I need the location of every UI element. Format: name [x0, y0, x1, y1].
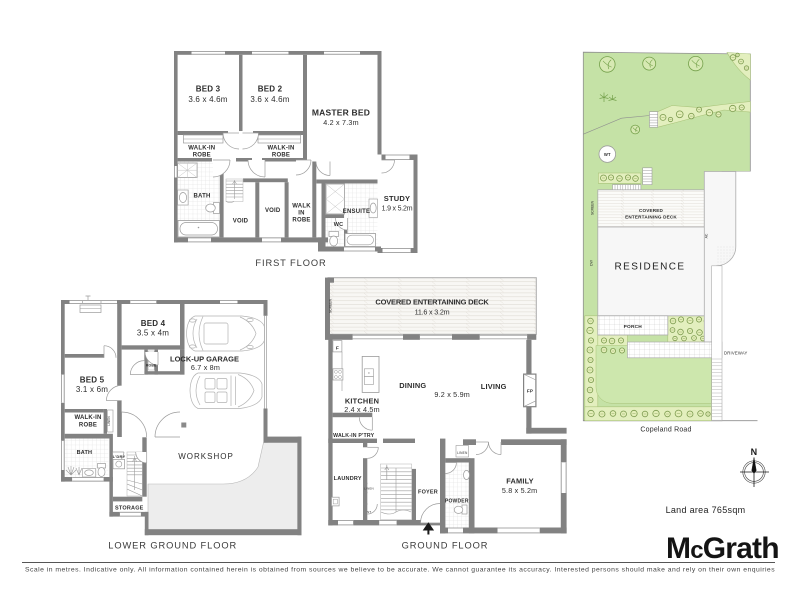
svg-text:DW: DW: [590, 259, 594, 265]
svg-text:1.9 x 5.2m: 1.9 x 5.2m: [382, 206, 413, 213]
svg-text:BED 3: BED 3: [196, 85, 221, 94]
svg-text:WALK-IN: WALK-IN: [267, 146, 294, 152]
svg-text:PORCH: PORCH: [624, 324, 643, 330]
svg-text:McGrath: McGrath: [666, 532, 779, 565]
svg-text:POWDER: POWDER: [445, 498, 469, 504]
svg-text:9.2 x 5.9m: 9.2 x 5.9m: [434, 390, 470, 399]
svg-text:BED 4: BED 4: [141, 319, 166, 328]
svg-text:COVERED ENTERTAINING DECK: COVERED ENTERTAINING DECK: [375, 298, 489, 307]
svg-text:WORKSHOP: WORKSHOP: [178, 452, 234, 461]
svg-text:ENTERTAINING DECK: ENTERTAINING DECK: [625, 215, 677, 220]
svg-text:2.4 x 4.5m: 2.4 x 4.5m: [344, 405, 380, 414]
svg-text:4.2 x 7.3m: 4.2 x 7.3m: [323, 118, 359, 127]
svg-text:SCREEN: SCREEN: [329, 298, 333, 313]
svg-text:SCREEN: SCREEN: [590, 200, 594, 215]
svg-text:N: N: [751, 447, 758, 457]
svg-text:Copeland Road: Copeland Road: [640, 427, 691, 434]
svg-text:BED 5: BED 5: [80, 376, 105, 385]
svg-text:WALK-IN: WALK-IN: [74, 415, 101, 421]
svg-text:FOYER: FOYER: [418, 490, 438, 496]
svg-text:GROUND FLOOR: GROUND FLOOR: [402, 541, 489, 551]
svg-text:LOWER GROUND FLOOR: LOWER GROUND FLOOR: [108, 541, 237, 551]
svg-text:LINEN: LINEN: [107, 416, 111, 426]
svg-text:COVERED: COVERED: [639, 208, 664, 213]
svg-text:WT: WT: [604, 152, 611, 157]
svg-text:ST: ST: [367, 510, 371, 514]
svg-text:BATH: BATH: [193, 194, 210, 200]
svg-text:ROBE: ROBE: [292, 218, 310, 224]
svg-text:STUDY: STUDY: [384, 194, 410, 203]
svg-text:BED 2: BED 2: [258, 85, 283, 94]
svg-text:DINING: DINING: [399, 381, 426, 390]
svg-text:LINEN: LINEN: [364, 487, 374, 491]
svg-text:3.6 x 4.6m: 3.6 x 4.6m: [250, 95, 289, 104]
svg-text:11.6 x 3.2m: 11.6 x 3.2m: [415, 308, 450, 317]
svg-text:3.1 x 6m: 3.1 x 6m: [76, 385, 108, 394]
svg-text:FAMILY: FAMILY: [506, 477, 534, 486]
svg-text:AC: AC: [705, 233, 709, 238]
svg-text:F: F: [336, 346, 339, 352]
svg-text:STORAGE: STORAGE: [115, 506, 144, 512]
svg-text:ROBE: ROBE: [146, 364, 157, 368]
svg-text:LAUNDRY: LAUNDRY: [334, 476, 362, 482]
svg-text:VOID: VOID: [233, 219, 249, 225]
svg-text:DRIVEWAY: DRIVEWAY: [724, 351, 747, 356]
svg-text:Scale in metres. Indicative on: Scale in metres. Indicative only. All in…: [25, 567, 775, 574]
svg-text:Land area 765sqm: Land area 765sqm: [666, 505, 746, 515]
svg-text:ROBE: ROBE: [79, 423, 97, 429]
svg-text:5.8 x 5.2m: 5.8 x 5.2m: [502, 486, 538, 495]
svg-text:ROBE: ROBE: [193, 153, 211, 159]
svg-text:WALK-IN P'TRY: WALK-IN P'TRY: [333, 433, 374, 439]
svg-text:FP: FP: [527, 389, 533, 394]
svg-text:IN: IN: [298, 211, 304, 217]
svg-text:WALK: WALK: [292, 204, 311, 210]
svg-text:LIVING: LIVING: [481, 382, 507, 391]
svg-text:ROBE: ROBE: [272, 153, 290, 159]
svg-text:FIRST FLOOR: FIRST FLOOR: [255, 258, 326, 268]
svg-text:LINEN: LINEN: [457, 451, 468, 455]
svg-text:3.5 x 4m: 3.5 x 4m: [137, 329, 169, 338]
svg-text:BATH: BATH: [77, 450, 93, 456]
svg-text:ENSUITE: ENSUITE: [343, 209, 370, 215]
svg-text:L'DRY: L'DRY: [113, 454, 126, 459]
svg-text:WC: WC: [334, 222, 344, 228]
svg-text:6.7 x 8m: 6.7 x 8m: [191, 363, 220, 372]
svg-text:RESIDENCE: RESIDENCE: [615, 262, 686, 273]
svg-text:WALK-IN: WALK-IN: [188, 146, 215, 152]
svg-text:3.6 x 4.6m: 3.6 x 4.6m: [188, 95, 227, 104]
svg-text:MASTER BED: MASTER BED: [312, 108, 370, 118]
svg-text:VOID: VOID: [265, 208, 281, 214]
